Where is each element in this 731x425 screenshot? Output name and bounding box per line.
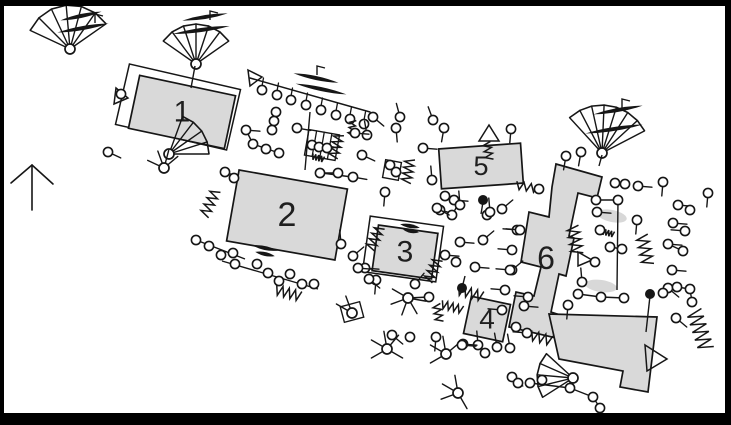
pin-circle [505, 343, 514, 352]
fence-post-circle [301, 100, 310, 109]
posthole-pin [596, 292, 605, 301]
frame-top [0, 0, 731, 6]
pin-circle [350, 128, 359, 137]
pin-circle [336, 239, 345, 248]
pin-circle [658, 177, 667, 186]
spider-circle [441, 349, 451, 359]
building-label-4: 4 [479, 304, 495, 335]
pin-circle [658, 288, 667, 297]
pin-tail [250, 130, 259, 131]
pin-circle [364, 274, 373, 283]
pin-circle [595, 225, 604, 234]
pin-circle [387, 330, 396, 339]
pin-circle [576, 147, 585, 156]
posthole-pin [271, 107, 280, 116]
posthole-pin [204, 241, 213, 250]
pin-circle [590, 257, 599, 266]
pin-circle [297, 279, 306, 288]
posthole-pin [191, 235, 200, 244]
pin-tail [496, 269, 505, 270]
pin-circle [685, 284, 694, 293]
building-label-3: 3 [397, 236, 414, 269]
pin-circle [263, 268, 272, 277]
pin-circle [680, 226, 689, 235]
posthole-pin [297, 279, 306, 288]
site-plan-svg: 123456 [0, 0, 731, 425]
site-plan-figure: 123456 [0, 0, 731, 425]
pin-circle [116, 89, 125, 98]
pin-circle [357, 150, 366, 159]
posthole-pin [391, 167, 400, 176]
pin-circle [685, 205, 694, 214]
pin-circle [455, 237, 464, 246]
pin-circle [191, 235, 200, 244]
pin-tail [427, 148, 436, 149]
pin-circle [620, 179, 629, 188]
pin-tail [528, 306, 537, 307]
fence-post-circle [316, 105, 325, 114]
pin-tail [396, 132, 397, 141]
pin-tail [491, 289, 500, 290]
building-label-2: 2 [278, 196, 297, 234]
pin-circle [348, 172, 357, 181]
pin-circle [480, 348, 489, 357]
pin-circle [230, 259, 239, 268]
pin-tail [642, 186, 651, 187]
posthole-pin [591, 195, 600, 204]
pin-circle [515, 225, 524, 234]
pin-tail [676, 270, 685, 271]
pin-circle [588, 392, 597, 401]
pin-tail [636, 224, 637, 233]
posthole-pin [687, 297, 696, 306]
pin-circle [440, 191, 449, 200]
pin-circle [632, 215, 641, 224]
posthole-pin [595, 225, 604, 234]
pin-tail [581, 268, 582, 277]
spider-circle [159, 163, 169, 173]
pin-circle [439, 123, 448, 132]
pin-tail [359, 133, 368, 134]
pin-circle [619, 293, 628, 302]
spider-circle [453, 388, 463, 398]
posthole-pin [263, 268, 272, 277]
pin-tail [449, 255, 458, 256]
pin-circle [563, 300, 572, 309]
posthole-pin [116, 89, 125, 98]
pin-circle [497, 204, 506, 213]
posthole-pin [405, 332, 414, 341]
posthole-pin [588, 392, 597, 401]
posthole-pin [424, 292, 433, 301]
filled-dot [457, 283, 467, 293]
posthole-pin [672, 282, 681, 291]
pin-tail [601, 212, 610, 213]
posthole-pin [678, 246, 687, 255]
posthole-pin [620, 179, 629, 188]
posthole-pin [309, 279, 318, 288]
pin-tail [479, 267, 488, 268]
posthole-pin [605, 242, 614, 251]
pin-circle [595, 403, 604, 412]
pin-circle [561, 151, 570, 160]
posthole-pin [230, 259, 239, 268]
posthole-pin [658, 288, 667, 297]
pin-circle [267, 125, 276, 134]
pin-circle [678, 246, 687, 255]
pin-circle [418, 143, 427, 152]
pin-circle [534, 184, 543, 193]
fence-post-circle [272, 90, 281, 99]
pin-circle [511, 322, 520, 331]
pin-tail [375, 284, 376, 293]
pin-tail [477, 331, 478, 340]
pin-circle [261, 144, 270, 153]
pin-circle [391, 167, 400, 176]
tree-trunk-circle [191, 59, 201, 69]
pin-circle [216, 250, 225, 259]
pin-circle [478, 235, 487, 244]
pin-circle [506, 124, 515, 133]
pin-tail [671, 230, 680, 231]
pin-circle [672, 282, 681, 291]
posthole-pin [333, 168, 342, 177]
posthole-pin [252, 259, 261, 268]
pin-circle [315, 168, 324, 177]
posthole-pin [537, 375, 546, 384]
pin-circle [673, 200, 682, 209]
pin-circle [405, 332, 414, 341]
pin-tail [514, 296, 523, 297]
pin-tail [662, 186, 663, 195]
fence-post-circle [257, 85, 266, 94]
pin-circle [271, 107, 280, 116]
pin-circle [380, 187, 389, 196]
pin-tail [506, 229, 515, 230]
fence-post-circle [331, 110, 340, 119]
pin-circle [613, 195, 622, 204]
pin-circle [204, 241, 213, 250]
building-5: 5 [439, 143, 524, 189]
pin-circle [668, 218, 677, 227]
pin-circle [592, 207, 601, 216]
posthole-pin [565, 383, 574, 392]
pin-tail [435, 341, 436, 350]
pin-circle [605, 242, 614, 251]
pin-tail [464, 242, 473, 243]
pin-circle [410, 279, 419, 288]
pin-circle [470, 262, 479, 271]
pin-circle [522, 328, 531, 337]
spider-circle [403, 293, 413, 303]
pin-circle [395, 112, 404, 121]
pin-circle [457, 340, 466, 349]
pin-tail [707, 197, 708, 206]
pin-circle [671, 313, 680, 322]
spider-circle [382, 344, 392, 354]
pin-circle [485, 207, 494, 216]
pin-tail [340, 230, 341, 239]
pin-circle [492, 342, 501, 351]
pin-circle [103, 147, 112, 156]
pin-circle [309, 279, 318, 288]
posthole-pin [685, 284, 694, 293]
pin-circle [274, 148, 283, 157]
pin-circle [440, 250, 449, 259]
pin-tail [431, 166, 432, 175]
posthole-pin [595, 403, 604, 412]
posthole-pin [285, 269, 294, 278]
pin-circle [229, 173, 238, 182]
posthole-pin [619, 293, 628, 302]
pin-circle [513, 378, 522, 387]
tree-trunk-circle [65, 44, 75, 54]
pin-circle [633, 181, 642, 190]
pin-tail [489, 198, 490, 207]
pin-circle [519, 301, 528, 310]
pin-circle [353, 263, 362, 272]
pin-circle [497, 305, 506, 314]
posthole-pin [573, 289, 582, 298]
pin-circle [565, 383, 574, 392]
pin-circle [362, 130, 371, 139]
posthole-pin [590, 257, 599, 266]
pin-circle [505, 265, 514, 274]
pin-circle [428, 115, 437, 124]
building-label-6: 6 [537, 240, 555, 276]
pin-circle [220, 167, 229, 176]
frame-right [725, 0, 731, 425]
pin-circle [667, 265, 676, 274]
pin-circle [703, 188, 712, 197]
posthole-pin [228, 248, 237, 257]
pin-circle [500, 285, 509, 294]
posthole-pin [229, 173, 238, 182]
pin-tail [677, 223, 686, 224]
pin-circle [577, 277, 586, 286]
pin-circle [391, 123, 400, 132]
pin-tail [567, 309, 568, 318]
pin-tail [384, 196, 385, 205]
posthole-pin [685, 205, 694, 214]
pin-circle [424, 292, 433, 301]
pin-circle [252, 259, 261, 268]
pin-circle [617, 244, 626, 253]
pin-circle [274, 276, 283, 285]
pin-circle [610, 178, 619, 187]
fence-post-circle [359, 119, 368, 128]
posthole-pin [617, 244, 626, 253]
pin-circle [269, 116, 278, 125]
pin-circle [455, 200, 464, 209]
posthole-pin [267, 125, 276, 134]
pin-tail [498, 249, 507, 250]
posthole-pin [511, 322, 520, 331]
pin-circle [523, 292, 532, 301]
spider-circle [347, 308, 357, 318]
posthole-pin [269, 116, 278, 125]
frame-left [0, 0, 4, 425]
filled-dot [478, 195, 488, 205]
posthole-pin [248, 139, 257, 148]
fence-post-circle [286, 95, 295, 104]
pin-circle [431, 332, 440, 341]
posthole-pin [525, 378, 534, 387]
pin-circle [573, 289, 582, 298]
pin-circle [228, 248, 237, 257]
posthole-pin [451, 257, 460, 266]
building-4: 4 [463, 296, 510, 341]
pin-circle [241, 125, 250, 134]
posthole-pin [513, 378, 522, 387]
posthole-pin [534, 184, 543, 193]
pin-circle [663, 239, 672, 248]
pin-tail [510, 133, 511, 142]
pin-tail [459, 191, 460, 200]
pin-circle [591, 195, 600, 204]
tree-trunk-circle [568, 373, 578, 383]
posthole-pin [613, 195, 622, 204]
pin-circle [292, 123, 301, 132]
frame-bottom [0, 413, 731, 425]
pin-circle [525, 378, 534, 387]
pin-circle [248, 139, 257, 148]
pin-circle [687, 297, 696, 306]
pin-circle [427, 175, 436, 184]
posthole-pin [480, 348, 489, 357]
pin-tail [513, 332, 522, 333]
pin-circle [348, 251, 357, 260]
pin-tail [362, 268, 371, 269]
pin-circle [596, 292, 605, 301]
pin-tail [466, 345, 475, 346]
pin-tail [488, 309, 497, 310]
pin-circle [368, 112, 377, 121]
pin-circle [507, 245, 516, 254]
pin-circle [322, 143, 331, 152]
posthole-pin [261, 144, 270, 153]
posthole-pin [322, 143, 331, 152]
pin-circle [432, 203, 441, 212]
posthole-pin [274, 276, 283, 285]
pin-circle [333, 168, 342, 177]
pin-tail [672, 244, 681, 245]
building-label-1: 1 [174, 96, 191, 129]
posthole-pin [274, 148, 283, 157]
posthole-pin [216, 250, 225, 259]
building-label-5: 5 [473, 151, 488, 181]
filled-dot [645, 289, 655, 299]
pin-circle [537, 375, 546, 384]
pin-circle [285, 269, 294, 278]
pin-circle [451, 257, 460, 266]
